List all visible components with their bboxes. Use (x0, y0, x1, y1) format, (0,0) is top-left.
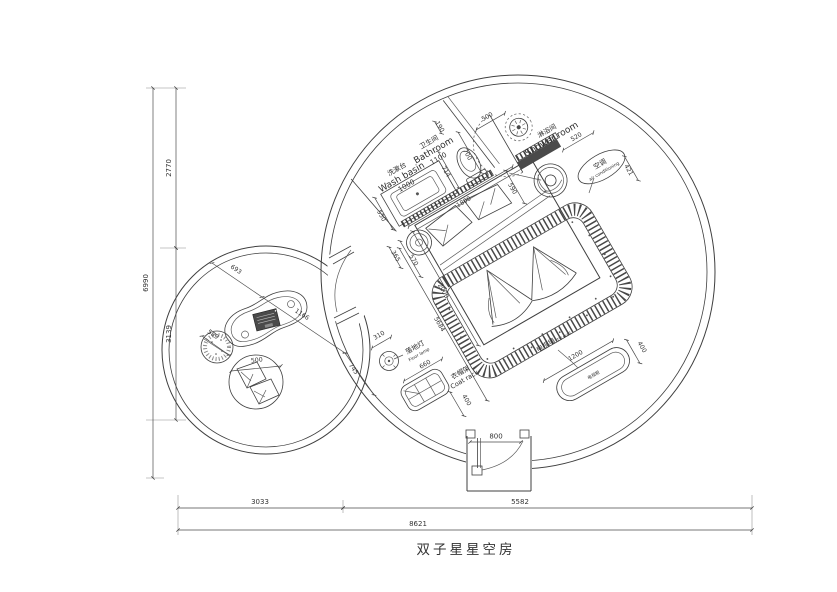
tv-cabinet-label: 电视柜 (586, 368, 601, 381)
dim-400-tv: 400 (636, 340, 648, 354)
svg-text:电视墙: 电视墙 (534, 336, 556, 354)
shower-head-icon (500, 109, 537, 146)
drawing-title: 双子星星空房 (417, 542, 516, 558)
passage (327, 242, 376, 332)
dim-310: 310 (372, 330, 386, 342)
dim-6990: 6990 (142, 274, 150, 292)
dim-500-cushion: 500 (251, 356, 264, 364)
shower-partition (443, 95, 495, 173)
main-room-shell (321, 75, 715, 469)
dim-590: 590 (506, 182, 518, 196)
dim-714: 714 (440, 165, 452, 179)
coat-rack (398, 366, 452, 413)
dim-5582: 5582 (511, 498, 529, 506)
dim-400-rack: 400 (460, 393, 472, 407)
floor-plan-svg: 电视柜 190 700 500 550 714 1800 590 520 4 (0, 0, 837, 592)
quilt (466, 232, 581, 331)
cushion (237, 362, 266, 388)
main-room-interior: 电视柜 190 700 500 550 714 1800 590 520 4 (340, 35, 718, 442)
dim-745: 745 (347, 362, 360, 376)
floor-lamp (380, 352, 399, 371)
dim-700: 700 (461, 148, 473, 162)
dim-421: 421 (622, 163, 634, 177)
dim-589: 589 (206, 329, 220, 342)
dim-8621: 8621 (409, 520, 427, 528)
dim-5684: 5684 (432, 316, 446, 333)
dim-190: 190 (433, 120, 445, 134)
headboard (417, 162, 533, 229)
dim-550: 550 (375, 209, 387, 223)
entrance-porch: 800 (466, 428, 532, 491)
dim-1200: 1200 (567, 349, 584, 363)
dim-500-shower: 500 (481, 111, 495, 123)
dim-3139: 3139 (165, 325, 173, 343)
faucet-icon (415, 192, 419, 196)
dim-3033: 3033 (251, 498, 269, 506)
sheet-fold (435, 191, 556, 271)
dim-365: 365 (389, 249, 401, 263)
pillow (423, 202, 475, 249)
toilet (451, 143, 489, 186)
dim-1800: 1800 (455, 195, 472, 209)
room-labels: 洗漱台 Wash basin 1000 卫生间 Bathroom 1100 淋浴… (372, 112, 630, 391)
dim-800: 800 (489, 433, 502, 441)
dim-693: 693 (229, 264, 243, 276)
dim-2770: 2770 (165, 159, 173, 177)
label-coat-rack: 衣帽架 Coat rack (445, 360, 481, 390)
floor-plan: 电视柜 190 700 500 550 714 1800 590 520 4 (0, 0, 837, 592)
label-ac: 空调 air conditioning (573, 143, 631, 191)
dimension-chains: 2770 3139 6990 3033 5582 8621 693 1166 7… (142, 88, 752, 535)
